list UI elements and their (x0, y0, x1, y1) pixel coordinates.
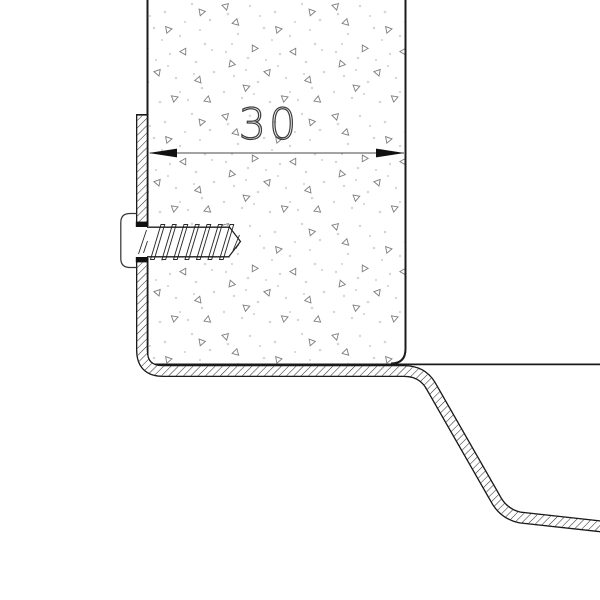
panel-section (148, 0, 406, 364)
dimension-label: 30 (239, 100, 300, 150)
screw-head-clip (121, 214, 137, 268)
technical-drawing-canvas: 30 (0, 0, 600, 600)
screw-bearing-lower (136, 257, 148, 262)
screw-bearing-upper (136, 222, 148, 227)
technical-drawing-page: 30 (0, 0, 600, 600)
panel-texture (148, 0, 406, 364)
